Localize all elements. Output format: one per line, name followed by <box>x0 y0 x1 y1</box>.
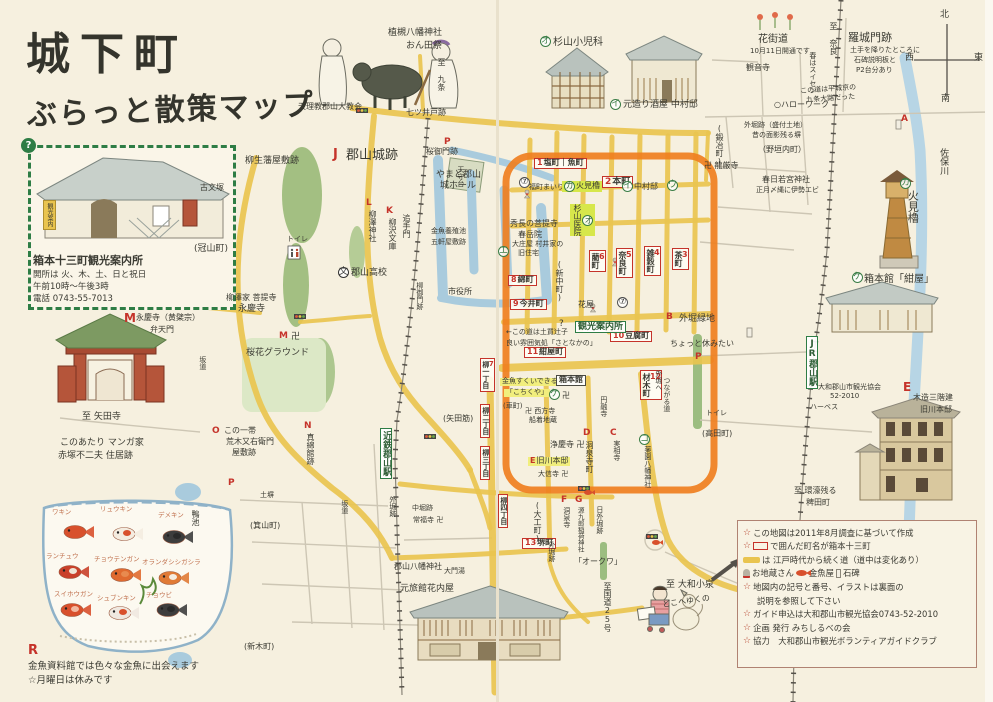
town-name-box: 7柳一丁目 <box>480 358 495 392</box>
flower-icons <box>757 12 793 30</box>
map-label: 柳澤神社 <box>367 210 376 242</box>
info-banner: 観光案内 <box>43 200 56 230</box>
circled-key: ケ <box>852 272 863 283</box>
map-label: 南 <box>941 94 950 104</box>
stroll-map-page: 城下町 ぶらっと散策マップ ? 観光案内 箱本十三町観光案内所 開所は 火、木、… <box>0 0 993 702</box>
map-label: 屋敷跡 <box>232 449 256 458</box>
town-number: E <box>530 456 535 465</box>
map-label: 五軒屋敷跡 <box>431 239 466 247</box>
legend-text: この地図は2011年8月調査に基づいて作成 <box>753 527 913 539</box>
town-name-box: 5奈良町 <box>616 248 633 278</box>
map-label: 金魚養殖池 <box>431 228 466 236</box>
highlighted-label: オ杉山医院 <box>570 204 595 236</box>
poi-letter: M <box>124 312 136 325</box>
legend-text: で囲んだ町名が箱本十三町 <box>770 540 871 552</box>
map-label: 木造三階建 <box>913 394 953 403</box>
town-number: 3 <box>682 251 688 260</box>
poi-letter: A <box>901 114 908 124</box>
legend-row: ☆企画 発行 みちしるべの会 <box>743 622 971 634</box>
poi-letter: G <box>575 495 582 505</box>
circled-key: オ <box>540 36 551 47</box>
circled-key: エ <box>498 246 509 257</box>
circled-key: イ <box>622 181 633 192</box>
map-label: (矢田筋) <box>443 415 473 424</box>
map-label: ←この道は土買辻子 <box>506 329 568 337</box>
map-label: 52-2010 <box>830 393 859 401</box>
goldfish-icon <box>796 570 807 576</box>
map-label: 市役所 <box>448 288 472 297</box>
town-number: 7 <box>489 361 494 369</box>
map-label: 真綿館跡 <box>305 433 314 465</box>
goldfish-name: チョウビ <box>146 589 172 599</box>
town-number: 4 <box>654 249 660 258</box>
circled-key: オ <box>582 215 593 226</box>
legend-row: ☆地図内の記号と番号、イラストは裏面の <box>743 581 971 593</box>
map-label: 日外堀跡 <box>595 506 603 534</box>
direction-arrow-icon <box>712 558 740 580</box>
poi-letter-r: R <box>28 643 38 658</box>
map-label: 柳沢文庫 <box>387 218 396 250</box>
stone-icon <box>836 569 841 578</box>
town-number: 8 <box>511 275 517 284</box>
town-name-box: 柳二丁目 <box>480 404 490 438</box>
town-name-box: 11紺屋町 <box>524 347 566 358</box>
legend-text: 地図内の記号と番号、イラストは裏面の <box>753 581 904 593</box>
map-label: 土塀 <box>260 492 274 500</box>
map-label: 花街道 <box>758 34 788 45</box>
map-label: 春岳院 <box>518 231 542 240</box>
map-label: トイレ <box>706 410 727 418</box>
legend-text: ガイド申込は大和郡山市観光協会0743-52-2010 <box>753 608 938 620</box>
star-icon: ☆ <box>743 609 751 619</box>
map-label: (新中町) <box>554 260 563 302</box>
map-label: この一帯 <box>224 427 256 436</box>
town-name-box: 1塩町｜魚町 <box>534 158 587 169</box>
map-label: 源九郎稲荷神社 <box>576 507 583 553</box>
map-label: 植槻八幡神社 <box>388 28 442 38</box>
scan-edge <box>985 0 993 702</box>
map-label: 中村邸 <box>634 183 658 192</box>
highlighted-label: 金魚すくいできる <box>500 378 560 386</box>
map-label: 火見櫓 <box>906 190 918 223</box>
legend-text: 石碑 <box>843 567 860 579</box>
map-label: 外堀跡（盛付土地） <box>744 122 807 130</box>
map-label: 10月11日開通です <box>750 48 810 56</box>
highlighted-label: E旧川本邸 <box>528 457 570 466</box>
info-office-illustration <box>33 150 231 246</box>
boxed-label: 箱本館 <box>556 375 586 386</box>
town-name-box: 柳四丁目 <box>498 494 508 528</box>
goldfish-name: チョウテンガン <box>94 553 140 563</box>
info-open-days: 開所は 火、木、土、日と祝日 <box>33 268 231 280</box>
goldfish-name: リュウキン <box>100 503 132 513</box>
poi-letter: P <box>695 352 702 362</box>
legend-row: ☆で囲んだ町名が箱本十三町 <box>743 540 971 552</box>
poi-letter: J <box>333 148 338 163</box>
map-label: 佐保川 <box>938 148 948 175</box>
map-label: 大和郡山市観光協会 <box>818 384 881 392</box>
map-label: 至 大和小泉 <box>666 580 714 590</box>
map-label: トイレ <box>287 236 308 244</box>
map-label: ちょっと休みたい <box>670 340 734 349</box>
poi-letter: B <box>666 312 673 322</box>
town-number: 2 <box>605 177 611 187</box>
paper-fold-line <box>496 0 499 702</box>
town-number: 5 <box>626 251 632 260</box>
map-label: 外堀緑地 <box>679 314 715 324</box>
circled-key: コ <box>639 434 650 445</box>
map-label: 元造り酒屋 中村邸 <box>623 100 698 110</box>
label-text: 火見櫓 <box>576 182 600 191</box>
yellow-road-icon <box>743 557 760 563</box>
hananoya-inn-illustration <box>410 586 568 660</box>
legend-text: お地蔵さん <box>752 567 794 579</box>
map-label: 至 奈良 <box>828 22 837 55</box>
poi-letter: C <box>610 428 617 438</box>
map-label: 円融寺 <box>599 396 607 417</box>
map-label: 坂道 <box>198 356 206 370</box>
goldfish-note: R 金魚資料館では色々な金魚に出会えます ☆月曜日は休みです <box>28 643 199 686</box>
map-label: 至 九条 <box>436 58 445 91</box>
map-label: 薬園八幡神社 <box>643 446 651 488</box>
map-label: 東 <box>974 53 983 63</box>
star-icon: ☆ <box>743 541 751 551</box>
map-label: 郡山八幡神社 <box>394 563 442 572</box>
circled-key: カ <box>900 178 911 189</box>
map-title: 城下町 ぶらっと散策マップ <box>26 18 314 134</box>
map-label: 元旅館花内屋 <box>400 584 454 594</box>
poi-letter: P <box>444 137 451 147</box>
map-label: 柳生藩屋敷跡 <box>245 156 299 166</box>
legend-row: 説明を参照して下さい <box>743 595 971 607</box>
poi-letter: F <box>561 495 567 505</box>
nakamura-house-illustration <box>626 36 702 102</box>
town-name-box: 6藺町 <box>589 250 606 272</box>
jizo-icon <box>743 569 750 578</box>
legend-text: 金魚屋 <box>809 567 834 579</box>
map-label: 北 <box>940 10 949 20</box>
map-label: 弁天門 <box>150 326 174 335</box>
star-icon: ☆ <box>743 582 751 592</box>
legend-text: 企画 発行 みちしるべの会 <box>753 622 850 634</box>
map-label: 至国道25号 <box>602 582 611 632</box>
legend-row: は 江戸時代から続く道（道中は変化あり） <box>743 554 971 566</box>
map-label: 外堀跡 <box>388 496 396 517</box>
map-label: (鍛冶町) <box>714 124 723 166</box>
map-label: 「オークワ」 <box>574 558 622 567</box>
poi-letter: P <box>228 478 235 488</box>
map-label: 柳澤家 菩提寺 <box>226 294 277 303</box>
map-label: P2台分あり <box>856 67 893 75</box>
map-label: ハーベス <box>810 404 838 412</box>
town-name-box: 4雑穀町 <box>644 246 661 276</box>
map-label: 船着地蔵 <box>529 417 557 425</box>
map-label: （野垣内町） <box>758 146 806 155</box>
map-label: 羅城門跡 <box>848 32 892 44</box>
highlighted-label: カ火見櫓 <box>562 181 602 192</box>
poi-letter: L <box>366 198 372 208</box>
map-label: 至 矢田寺 <box>82 412 121 422</box>
goldfish-name: スイホウガン <box>54 588 93 598</box>
map-label: 福町まいり <box>529 184 564 192</box>
map-title-line1: 城下町 <box>26 18 314 82</box>
tourist-info-panel: ? 観光案内 箱本十三町観光案内所 開所は 火、木、土、日と祝日 午前10時～午… <box>28 145 236 310</box>
map-label: 至 環濠残る <box>794 487 837 496</box>
map-label: 洞泉寺町 <box>584 441 593 473</box>
circled-key: イ <box>610 99 621 110</box>
map-label: 天理教郡山大教会 <box>298 103 362 112</box>
goldfish-name: オランダシシガシラ <box>142 556 201 566</box>
star-icon: ☆ <box>743 528 751 538</box>
person-and-dog-illustration <box>637 586 702 632</box>
legend-text: は 江戸時代から続く道（道中は変化あり） <box>762 554 924 566</box>
map-label: 旧住宅 <box>518 250 539 258</box>
map-label: 外堀跡 <box>547 541 555 562</box>
map-label: 追手門 <box>401 214 410 238</box>
info-office-name: 箱本十三町観光案内所 <box>33 252 231 268</box>
highlighted-label: 「こちくや」 <box>504 389 550 397</box>
map-label: (冠山町) <box>194 244 228 254</box>
map-label: 郡山高校 <box>351 268 387 278</box>
town-name-box: 柳三丁目 <box>480 446 490 480</box>
legend-row: ☆ガイド申込は大和郡山市観光協会0743-52-2010 <box>743 608 971 620</box>
map-label: 中堀跡 <box>412 505 433 513</box>
map-label: おん田祭 <box>406 41 442 51</box>
map-label: 秀長の菩提寺 <box>510 220 558 229</box>
map-label: このあたり マンガ家 <box>60 438 144 448</box>
info-phone: 電話 0743-55-7013 <box>33 292 231 304</box>
legend-panel: ☆この地図は2011年8月調査に基づいて作成☆で囲んだ町名が箱本十三町は 江戸時… <box>737 520 977 668</box>
town-number: 1 <box>537 158 543 167</box>
town-name-box: 3茶町 <box>672 248 689 270</box>
map-label: 大門湯 <box>444 568 465 576</box>
map-label: 常福寺 卍 <box>413 517 443 525</box>
map-label: 大信寺 卍 <box>538 471 568 479</box>
map-label: 卍 <box>562 392 570 401</box>
legend-row: お地蔵さん金魚屋石碑 <box>743 567 971 579</box>
poi-letter: D <box>583 428 590 438</box>
map-label: 西 <box>905 53 914 63</box>
map-label: 杉山小児科 <box>553 37 603 48</box>
circled-key: ウ <box>667 180 678 191</box>
map-label: 城ホール <box>440 181 476 191</box>
map-label: 稗田町 <box>806 499 830 508</box>
compass-icon <box>914 24 980 96</box>
circled-number: ⑦ <box>617 297 628 308</box>
map-label: (箕山町) <box>250 522 280 531</box>
question-mark-icon: ? <box>21 138 36 153</box>
map-label: 永慶寺 <box>238 304 265 314</box>
poi-letter: N <box>304 421 312 431</box>
map-label: 箱本館「紺屋」 <box>864 274 934 285</box>
map-label: (車町) <box>503 403 522 411</box>
info-open-hours: 午前10時～午後3時 <box>33 280 231 292</box>
map-label: 桜花グラウンド <box>246 348 309 358</box>
map-label: 荒木又右衛門 <box>226 438 274 447</box>
map-label: 坂道 <box>340 500 348 514</box>
map-label: 卍 西方寺 <box>525 408 555 416</box>
green-sign: 観光案内所 <box>575 321 626 333</box>
star-icon: ☆ <box>743 623 751 633</box>
poi-letter: O <box>212 426 220 436</box>
town-name-box: 9今井町 <box>510 299 547 310</box>
goldfish-note-line1: 金魚資料館では色々な金魚に出会えます <box>28 661 199 672</box>
goldfish-name: シュブンキン <box>97 592 136 602</box>
map-label: 洞泉寺 <box>562 507 570 528</box>
goldfish-name: デメキン <box>158 509 184 519</box>
map-label: (新木町) <box>244 643 274 652</box>
map-label: 良い雰囲気処「さとなかの」 <box>506 340 597 348</box>
map-label: 大庄屋 村井家の <box>512 241 563 249</box>
circled-key: カ <box>564 181 575 192</box>
school-mark: 文 <box>338 267 349 278</box>
map-label: 実相寺 <box>612 440 620 461</box>
town-number: 11 <box>527 347 538 356</box>
town-number: 6 <box>599 253 605 262</box>
map-label: 卍 <box>291 332 300 342</box>
toilet-icon <box>288 246 300 259</box>
goldfish-note-line2: ☆月曜日は休みです <box>28 675 113 686</box>
map-label: 桜御門跡 <box>426 148 458 157</box>
station-sign: JR郡山駅 <box>806 336 818 389</box>
legend-row: ☆協力 大和郡山市観光ボランティアガイドクラブ <box>743 635 971 647</box>
map-label: 外堀へ <box>654 370 662 391</box>
map-label: (大工町) <box>532 501 541 543</box>
map-label: 昔の面影残る塀 <box>752 132 801 140</box>
map-label: 旧川本邸 <box>920 406 952 415</box>
map-label: (高田町) <box>702 430 732 439</box>
map-label: 柳御門跡 <box>415 282 423 310</box>
map-label: 古文塚 <box>200 184 224 193</box>
sugiyama-clinic-illustration <box>546 48 608 108</box>
poi-letter: M <box>279 331 288 341</box>
map-label: 浄慶寺 卍 <box>550 441 585 450</box>
kamo-pond <box>175 483 201 501</box>
goldfish-name: ワキン <box>52 506 71 516</box>
label-text: 杉山医院 <box>572 204 581 236</box>
map-label: 七ツ井戸跡 <box>406 109 446 118</box>
map-label: 永慶寺（黄檗宗） <box>136 314 200 323</box>
circled-key: ケ <box>549 389 560 400</box>
map-label: 正月〆縄に伊勢エビ <box>756 187 819 195</box>
red-box-icon <box>753 542 768 550</box>
map-label: 赤塚不二夫 住居跡 <box>58 451 133 461</box>
poi-letter: K <box>386 206 393 216</box>
poi-letter: E <box>903 381 911 394</box>
town-number: 9 <box>513 299 519 308</box>
map-label: やまと郡山 <box>436 170 481 180</box>
legend-row: ☆この地図は2011年8月調査に基づいて作成 <box>743 527 971 539</box>
station-sign: 近鉄郡山駅 <box>380 428 392 479</box>
map-label: 春日若宮神社 <box>762 176 810 185</box>
map-label: 鴨池 <box>190 510 199 526</box>
map-label: 郡山城跡 <box>346 149 398 164</box>
legend-text: 協力 大和郡山市観光ボランティアガイドクラブ <box>753 635 937 647</box>
star-icon: ☆ <box>743 636 751 646</box>
map-label: つながる道 <box>662 377 670 412</box>
map-label: 観音寺 <box>746 64 770 73</box>
legend-text: 説明を参照して下さい <box>757 595 841 607</box>
map-label: 石碑説明板と <box>854 57 896 65</box>
map-title-line2: ぶらっと散策マップ <box>26 80 315 134</box>
goldfish-name: ランチュウ <box>46 550 79 560</box>
town-name-box: 8綿町 <box>508 275 537 286</box>
map-label: 花屋 <box>578 301 594 310</box>
